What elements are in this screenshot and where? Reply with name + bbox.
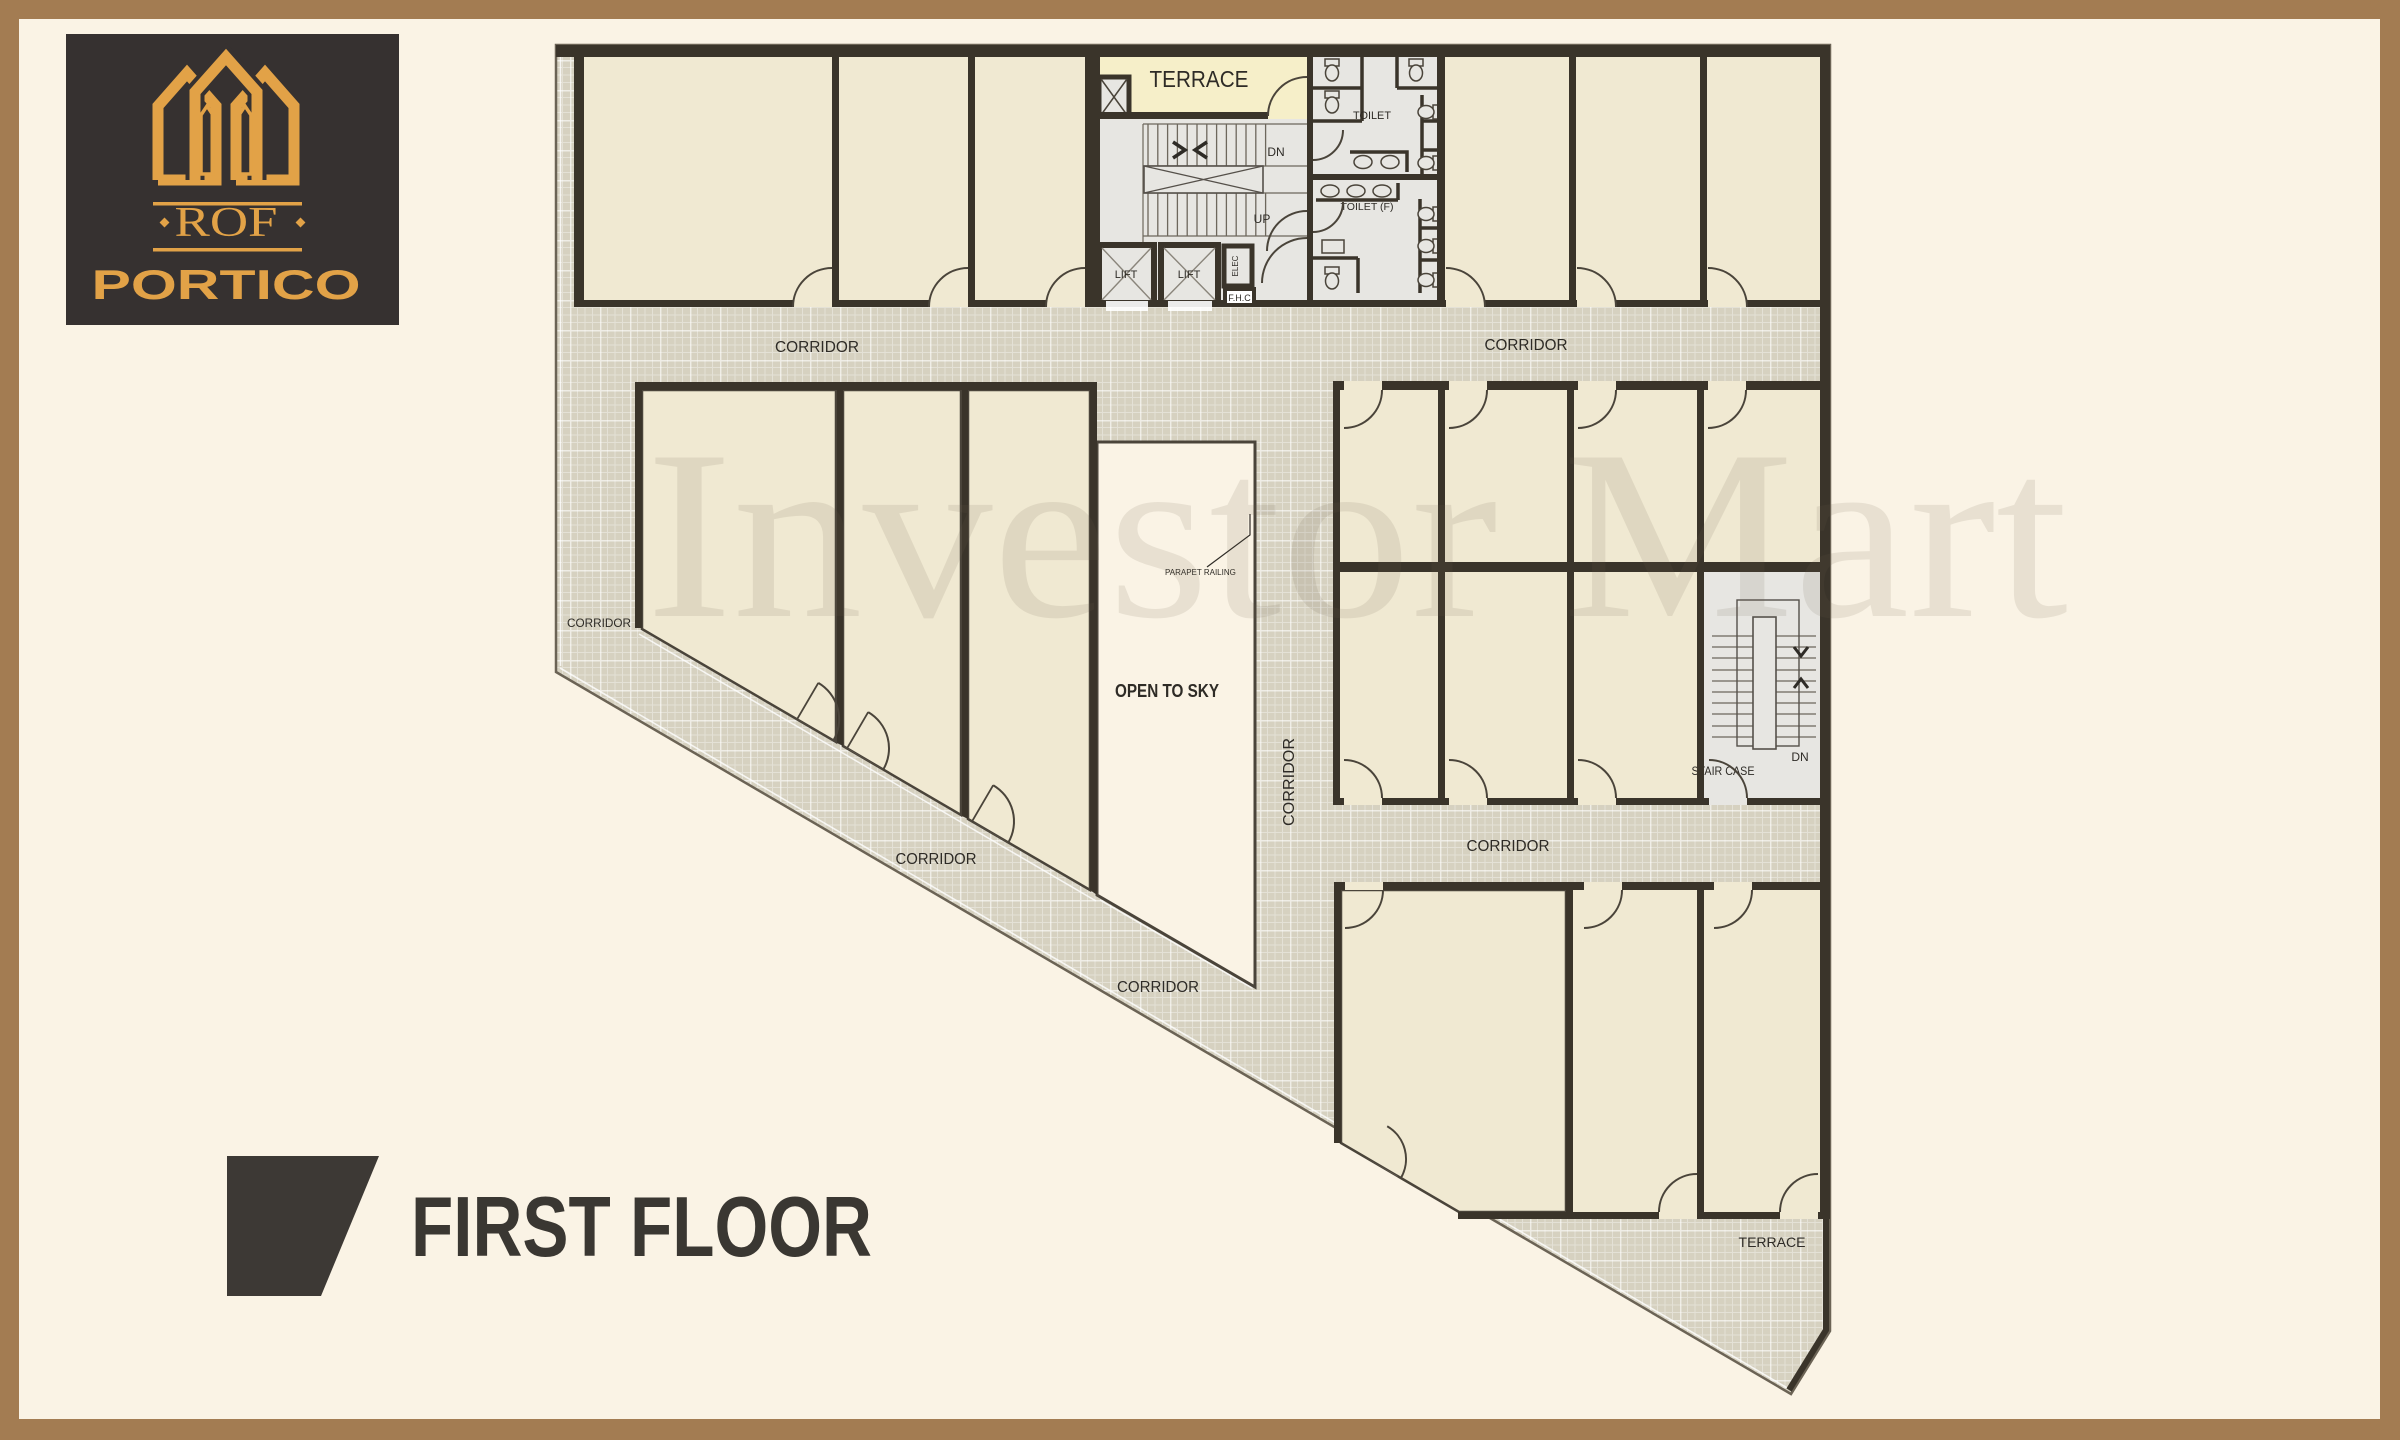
svg-text:OPEN TO SKY: OPEN TO SKY (1115, 681, 1219, 701)
svg-text:F.H.C: F.H.C (1228, 293, 1251, 303)
svg-text:TERRACE: TERRACE (1739, 1234, 1806, 1250)
svg-text:CORRIDOR: CORRIDOR (775, 339, 859, 356)
svg-text:DN: DN (1791, 750, 1808, 764)
svg-text:CORRIDOR: CORRIDOR (896, 851, 977, 868)
svg-text:CORRIDOR: CORRIDOR (1117, 979, 1199, 996)
svg-text:LIFT: LIFT (1178, 269, 1201, 281)
svg-text:ELEC: ELEC (1231, 255, 1240, 276)
svg-text:DN: DN (1267, 145, 1284, 159)
svg-text:CORRIDOR: CORRIDOR (1485, 337, 1568, 354)
svg-text:UP: UP (1254, 212, 1271, 226)
svg-text:TOILET (F): TOILET (F) (1341, 202, 1394, 213)
svg-text:Investor Mart: Investor Mart (646, 401, 2068, 669)
svg-text:LIFT: LIFT (1115, 269, 1138, 281)
svg-text:CORRIDOR: CORRIDOR (567, 616, 631, 630)
svg-text:CORRIDOR: CORRIDOR (1467, 838, 1550, 855)
svg-text:TOILET: TOILET (1353, 110, 1391, 122)
svg-text:ROF: ROF (175, 200, 278, 246)
svg-text:CORRIDOR: CORRIDOR (1281, 738, 1298, 826)
svg-text:TERRACE: TERRACE (1150, 66, 1249, 92)
svg-text:FIRST FLOOR: FIRST FLOOR (411, 1180, 872, 1275)
svg-text:PORTICO: PORTICO (92, 261, 361, 308)
